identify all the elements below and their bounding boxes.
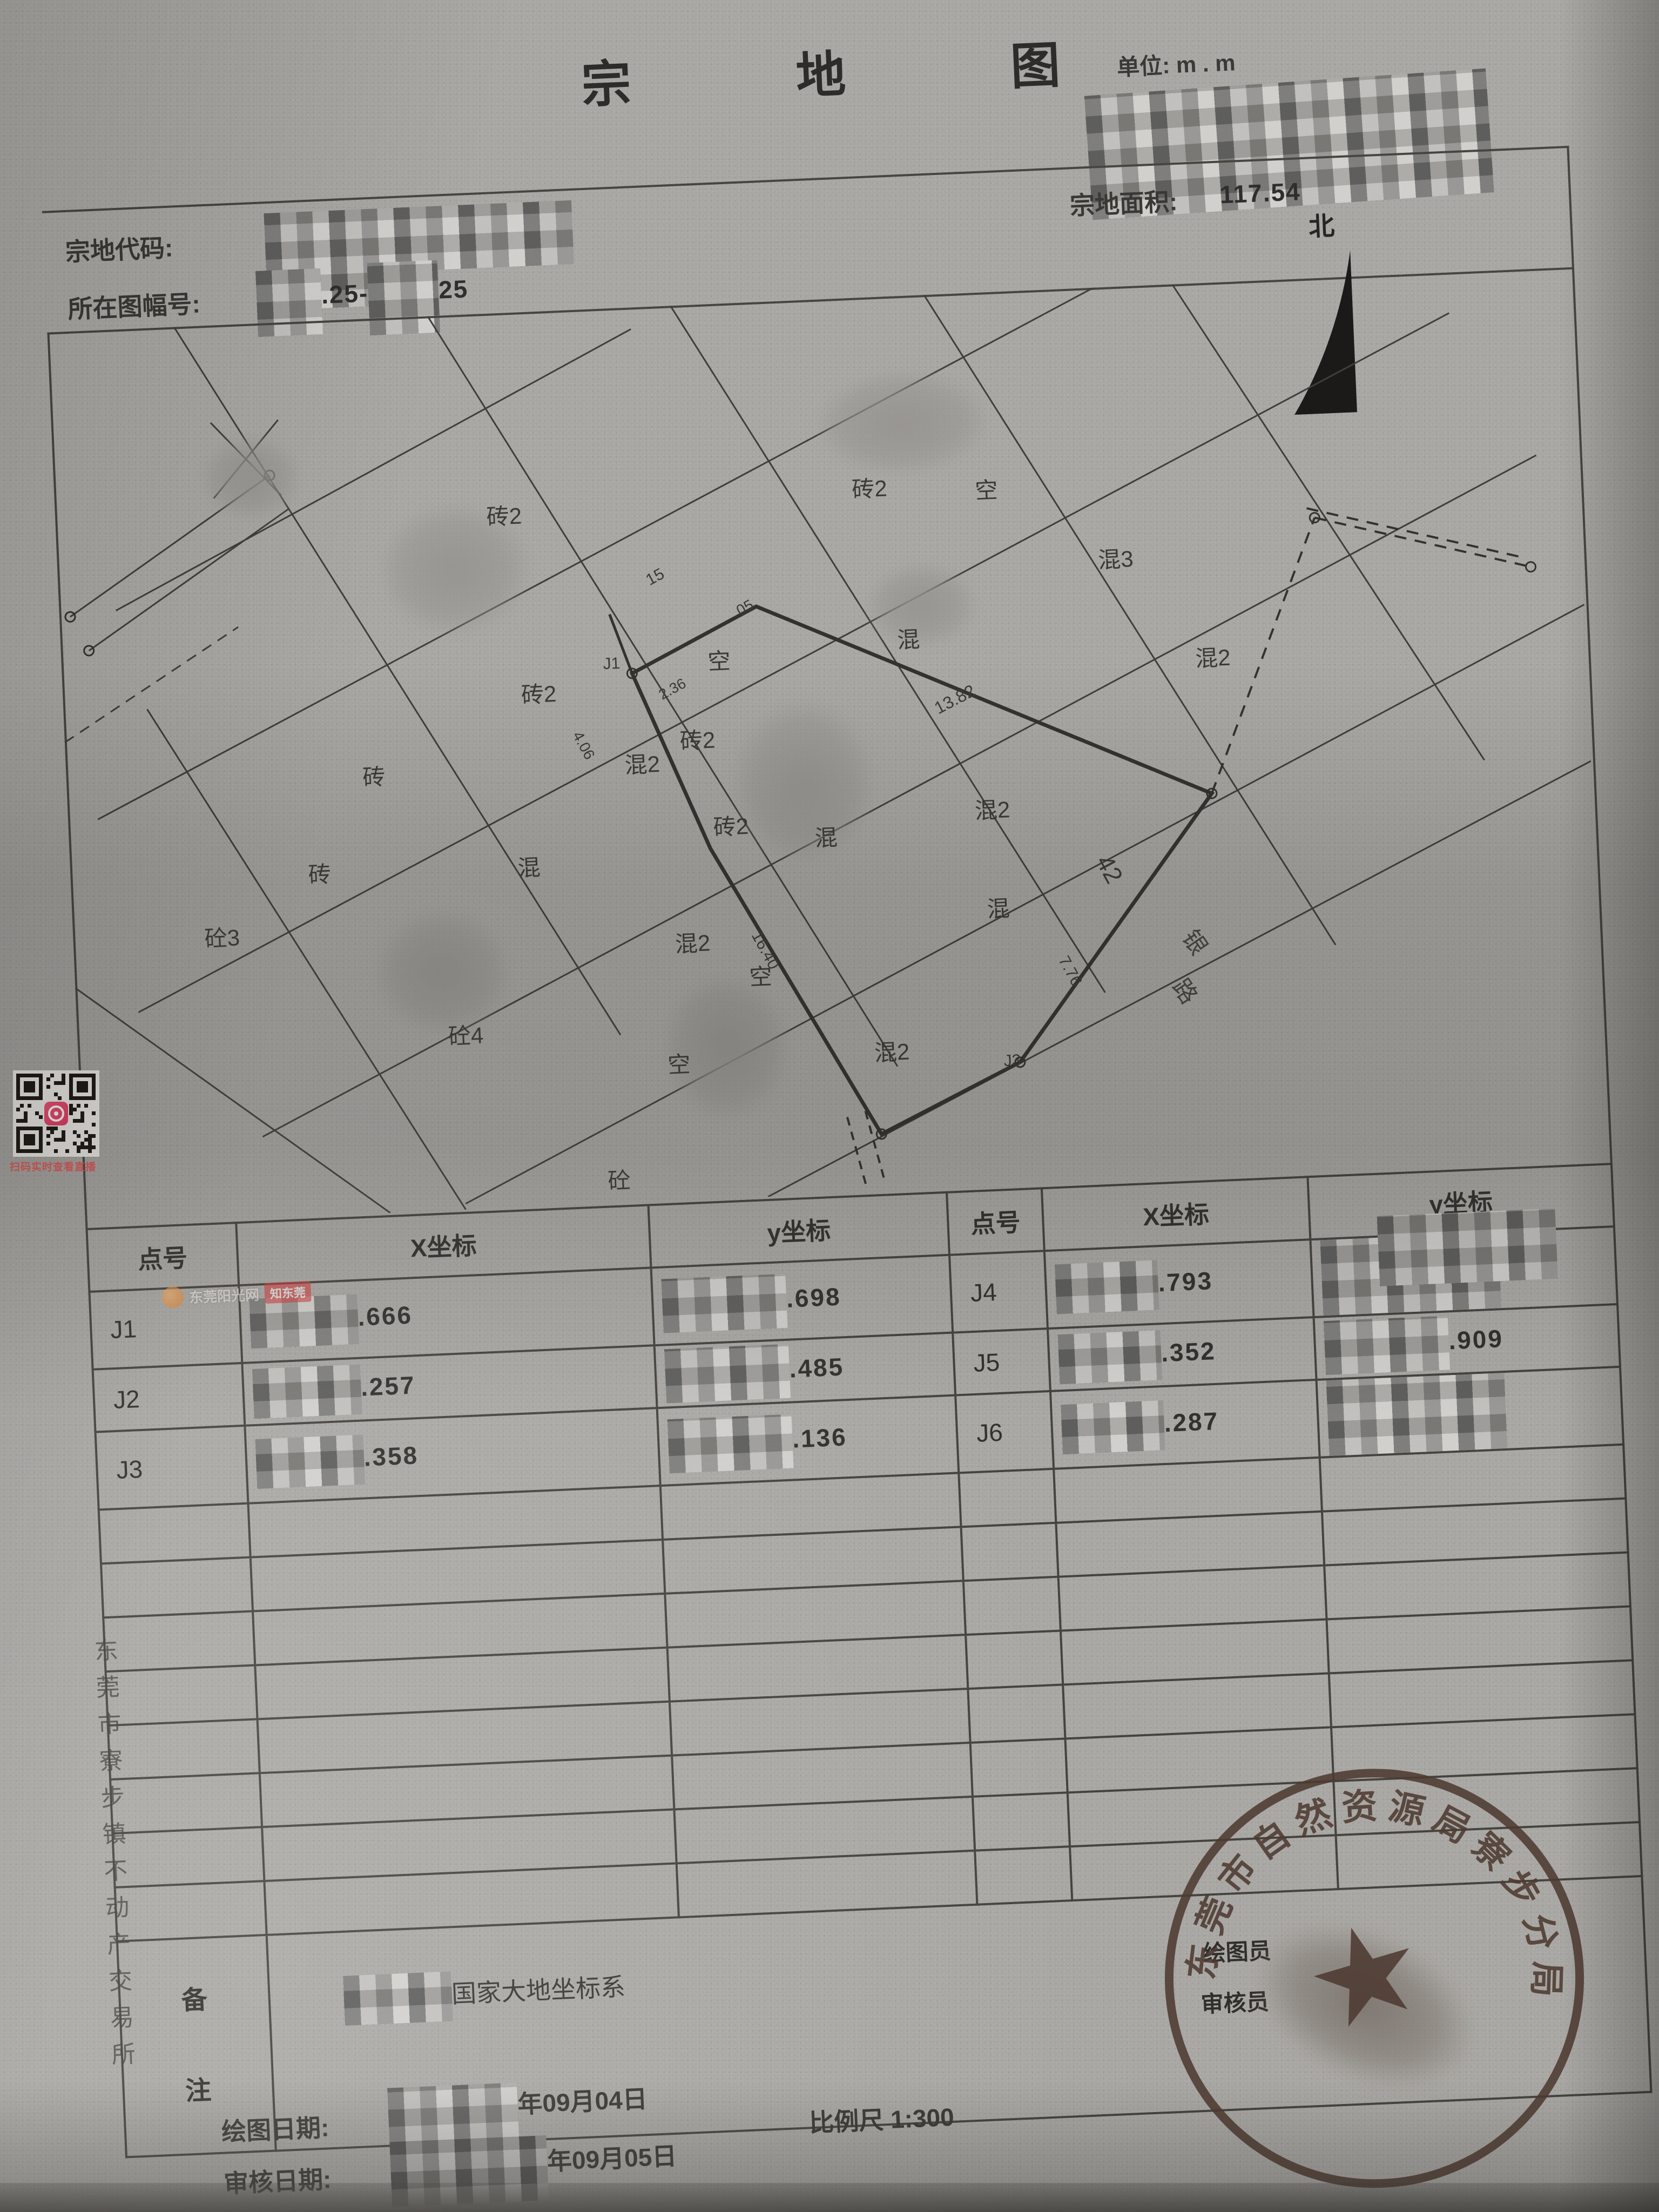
coord-redaction (1326, 1373, 1507, 1456)
coord-redaction (1055, 1260, 1159, 1314)
coord-redaction (1061, 1400, 1165, 1454)
point-id: J4 (949, 1251, 1048, 1332)
col-header: 点号 (86, 1223, 238, 1292)
parcel-code-label: 宗地代码: (65, 228, 174, 268)
remarks-text: 国家大地坐标系 (451, 1973, 626, 2008)
point-id: J5 (953, 1328, 1050, 1395)
draw-date-label: 绘图日期: (221, 2108, 330, 2148)
north-label: 北 (1308, 205, 1336, 244)
stamp-star-icon: ★ (1289, 1889, 1441, 2060)
coord-redaction (664, 1344, 791, 1404)
remarks-redaction (343, 1971, 453, 2025)
photo-bottom-edge (0, 2183, 1659, 2212)
point-id: J3 (96, 1426, 248, 1510)
col-header: X坐标 (1042, 1177, 1310, 1251)
area-value: 117.54 (1219, 177, 1301, 209)
coord-redaction (667, 1414, 793, 1474)
sheet-no-label: 所在图幅号: (67, 284, 201, 325)
coord-cell: .352 (1048, 1317, 1316, 1391)
official-stamp: 东莞市自然资源局寮步分局 ★ (1141, 1745, 1608, 2212)
qr-caption: 扫码实时查看直播 (10, 1159, 96, 1174)
coord-cell: .287 (1050, 1380, 1319, 1469)
coord-redaction (661, 1274, 787, 1333)
sheet-no-part2: 25 (438, 274, 469, 304)
col-header: 点号 (947, 1188, 1044, 1255)
header-right-rule (1567, 146, 1574, 268)
coord-cell: .698 (651, 1255, 953, 1346)
document-sheet: 宗 地 图 单位: m . m 宗地代码: 所在图幅号: .25-25 宗地面积… (0, 0, 1659, 2212)
coord-redaction (1057, 1330, 1162, 1384)
coord-cell: .136 (657, 1395, 959, 1486)
coord-cell: .793 (1044, 1239, 1313, 1328)
point-id: J2 (93, 1363, 245, 1432)
qr-center-eye-icon (44, 1102, 68, 1125)
area-label: 宗地面积: (1069, 182, 1178, 222)
coord-cell (1316, 1367, 1623, 1458)
sheet-no-part1: .25- (321, 279, 369, 309)
unit-label: 单位: m . m (1116, 44, 1236, 82)
table-redaction-mosaic (1377, 1209, 1558, 1286)
point-id: J6 (955, 1391, 1054, 1473)
coord-redaction (252, 1365, 362, 1419)
coord-redaction (255, 1434, 365, 1488)
page-title: 宗 地 图 (580, 22, 1137, 117)
draw-date-redaction (387, 2082, 519, 2144)
scale-text: 比例尺 1:300 (808, 2098, 955, 2139)
watermark-badge: 知东莞 (264, 1281, 312, 1304)
qr-code (16, 1074, 96, 1154)
scanned-parcel-map-photo: 宗 地 图 单位: m . m 宗地代码: 所在图幅号: .25-25 宗地面积… (0, 0, 1659, 2212)
watermark-site-text: 东莞阳光网 (188, 1284, 259, 1307)
watermark-logo-icon (161, 1286, 184, 1309)
coord-redaction (1324, 1316, 1450, 1375)
